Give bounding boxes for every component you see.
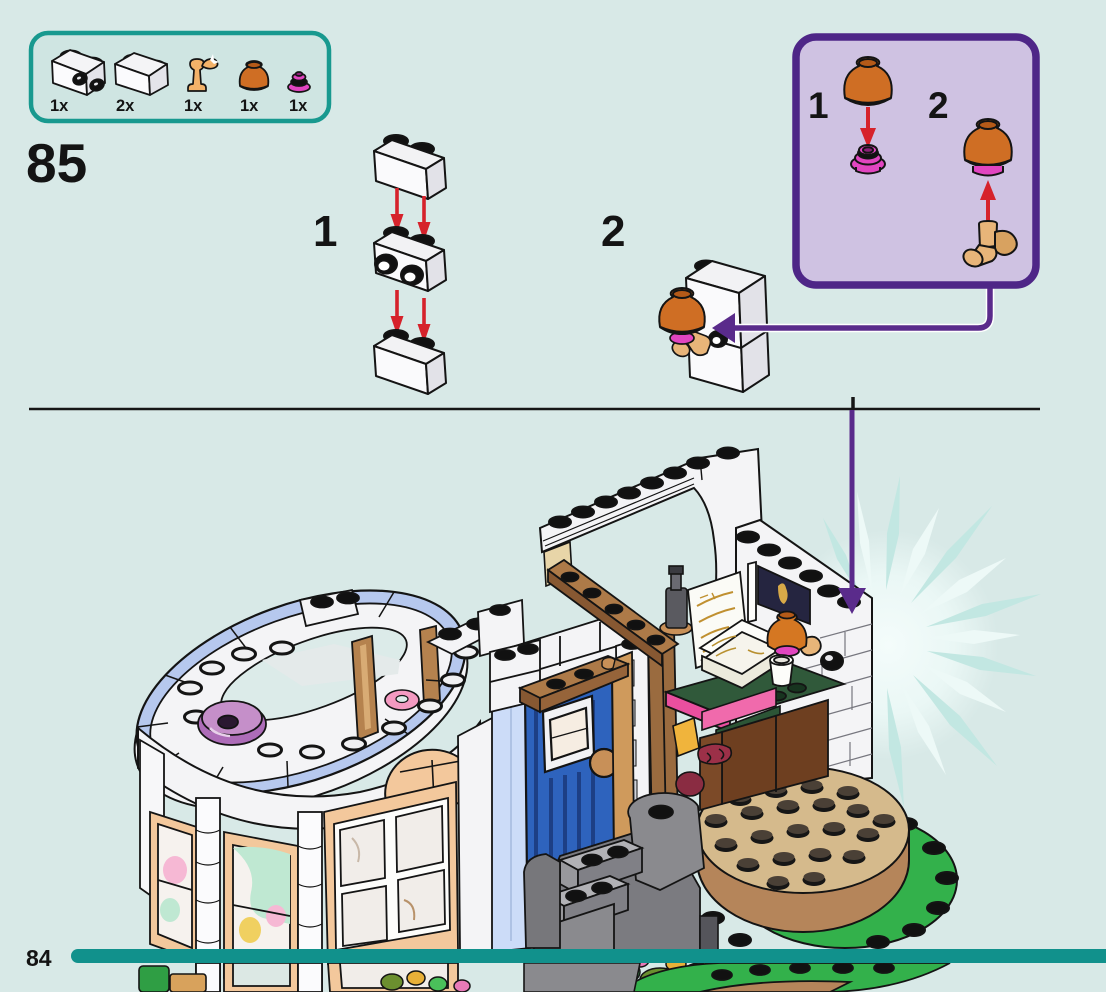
svg-text:2: 2 [601,207,625,256]
svg-text:1x: 1x [240,97,259,115]
svg-text:84: 84 [26,945,52,971]
svg-text:1: 1 [313,207,337,256]
svg-text:1x: 1x [184,97,203,115]
svg-text:2x: 2x [116,97,135,115]
svg-text:1x: 1x [289,97,308,115]
svg-text:1x: 1x [50,97,69,115]
svg-text:1: 1 [808,85,829,126]
svg-text:85: 85 [26,132,87,194]
svg-text:2: 2 [928,85,949,126]
